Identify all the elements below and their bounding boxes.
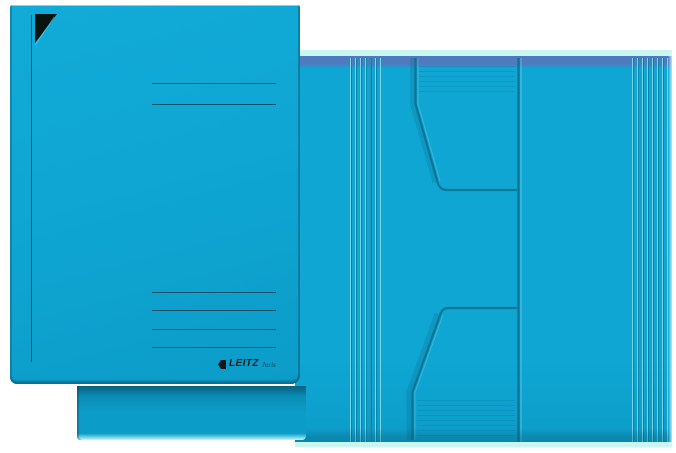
closed-folder-graphics [10,5,300,384]
margin-line [31,15,32,362]
ruled-line [152,83,276,84]
ruled-line [152,329,276,330]
open-folder-bottom-shadow [295,428,672,443]
ruled-line [152,104,276,105]
leitz-arrow-icon [218,360,226,369]
back-panel [77,386,306,440]
ruled-line [152,292,276,293]
open-folder-top-edge [295,50,672,56]
product-photo: LEITZ Juris [0,0,676,453]
logo-text: LEITZ [229,359,259,369]
bottom-flap [413,308,518,440]
logo-subtext: Juris [262,361,276,369]
open-folder-bottom-edge [295,442,672,447]
leitz-logo: LEITZ Juris [218,357,276,369]
open-folder-flaps [295,50,672,447]
open-folder-right-edge [668,50,672,447]
open-folder [295,50,672,447]
ruled-line [152,347,276,348]
closed-folder: LEITZ Juris [10,5,300,384]
ruled-line [152,310,276,311]
